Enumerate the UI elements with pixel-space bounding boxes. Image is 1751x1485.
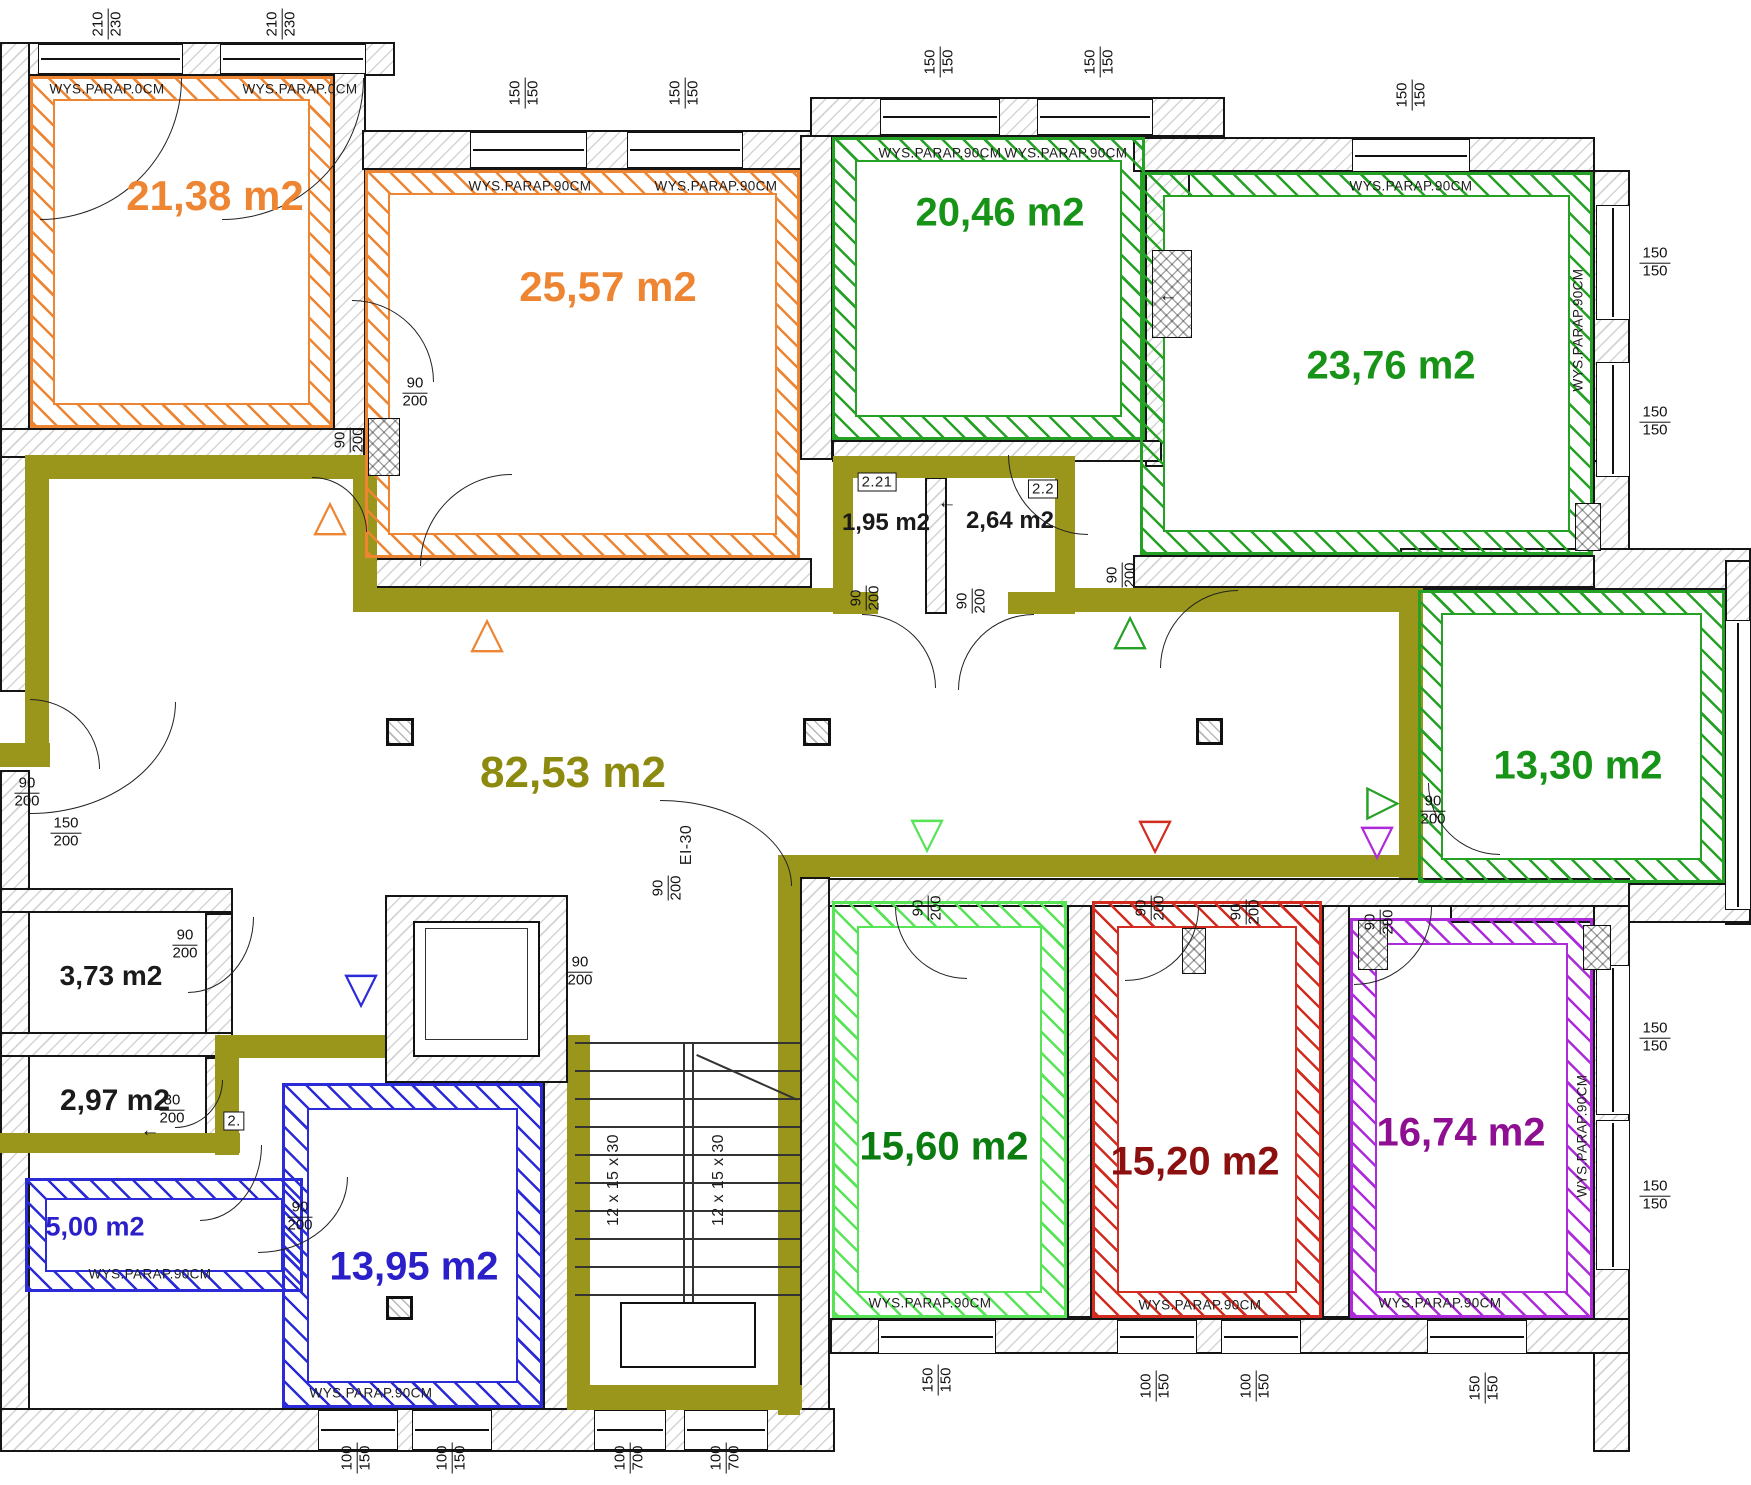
up-triangle-marker: △ bbox=[313, 494, 347, 538]
room-area-label: 82,53 m2 bbox=[480, 748, 666, 798]
window-symbol bbox=[1037, 99, 1153, 135]
dimension-bottom: 150 bbox=[939, 1364, 956, 1395]
room-area-label: 23,76 m2 bbox=[1306, 344, 1475, 389]
dimension-top: 90 bbox=[333, 427, 351, 452]
dimension-bottom: 150 bbox=[453, 1442, 470, 1473]
dimension-top: 150 bbox=[1395, 79, 1413, 110]
dimension-bottom: 200 bbox=[669, 875, 686, 900]
dimension-bottom: 200 bbox=[172, 946, 197, 963]
dimension-bottom: 200 bbox=[1123, 562, 1140, 587]
corridor-boundary bbox=[353, 588, 835, 612]
dimension-bottom: 700 bbox=[631, 1442, 648, 1473]
dimension-top: 100 bbox=[613, 1442, 631, 1473]
dimension-label: 150150 bbox=[1639, 1021, 1670, 1056]
dimension-label: 150150 bbox=[668, 77, 703, 108]
dimension-label: 90200 bbox=[849, 585, 884, 610]
dimension-label: 90200 bbox=[911, 895, 946, 920]
dimension-label: 100700 bbox=[613, 1442, 648, 1473]
dimension-label: 90200 bbox=[172, 928, 197, 963]
vent-shaft bbox=[1583, 925, 1611, 970]
corridor-boundary bbox=[778, 855, 800, 1415]
dimension-top: 150 bbox=[1083, 46, 1101, 77]
dimension-label: 90200 bbox=[1105, 562, 1140, 587]
stair-tread bbox=[575, 1098, 800, 1100]
dimension-label: 100150 bbox=[340, 1442, 375, 1473]
wall-segment bbox=[800, 877, 830, 1410]
wall-annotation: WYS.PARAP.90CM bbox=[1005, 146, 1128, 161]
wall-segment bbox=[1133, 555, 1595, 588]
dimension-label: 90200 bbox=[955, 588, 990, 613]
dimension-label: 90200 bbox=[14, 776, 39, 811]
dimension-bottom: 150 bbox=[1413, 79, 1430, 110]
wall-segment bbox=[800, 135, 833, 460]
wall-annotation: WYS.PARAP.90CM bbox=[1139, 1298, 1262, 1313]
room-15-60-interior bbox=[857, 926, 1042, 1293]
stair-tread bbox=[575, 1126, 800, 1128]
window-symbol bbox=[470, 132, 587, 168]
dimension-top: 210 bbox=[265, 8, 283, 39]
dimension-top: 90 bbox=[1420, 794, 1445, 812]
dimension-top: 100 bbox=[1139, 1370, 1157, 1401]
dimension-top: 90 bbox=[911, 895, 929, 920]
stair-tread bbox=[575, 1042, 800, 1044]
wall-annotation: WYS.PARAP.90CM bbox=[310, 1386, 433, 1401]
window-symbol bbox=[1117, 1320, 1197, 1354]
stair-tread bbox=[575, 1294, 800, 1296]
dimension-top: 100 bbox=[709, 1442, 727, 1473]
dimension-label: 90200 bbox=[1229, 899, 1264, 924]
dimension-label: 90200 bbox=[1420, 794, 1445, 829]
dimension-top: 150 bbox=[50, 816, 81, 834]
column bbox=[386, 718, 414, 746]
direction-arrow: ← bbox=[1159, 285, 1178, 307]
wall-annotation: 12 x 15 x 30 bbox=[605, 1134, 623, 1226]
dimension-label: 90200 bbox=[333, 427, 368, 452]
dimension-top: 150 bbox=[1639, 405, 1670, 423]
wall-segment bbox=[0, 1032, 233, 1057]
vent-shaft bbox=[368, 418, 400, 476]
dimension-bottom: 200 bbox=[929, 895, 946, 920]
dimension-label: 90200 bbox=[287, 1200, 312, 1235]
dimension-label: 100150 bbox=[1139, 1370, 1174, 1401]
dimension-bottom: 150 bbox=[1639, 1039, 1670, 1056]
dimension-bottom: 200 bbox=[1152, 895, 1169, 920]
room-20-46 bbox=[832, 137, 1145, 440]
room-area-label: 21,38 m2 bbox=[126, 172, 303, 220]
room-area-label: 20,46 m2 bbox=[915, 191, 1084, 236]
dimension-top: 150 bbox=[921, 1364, 939, 1395]
dimension-label: 90200 bbox=[1363, 909, 1398, 934]
window-symbol bbox=[1352, 139, 1470, 172]
room-25-57-interior bbox=[388, 193, 777, 535]
dimension-label: 150150 bbox=[1639, 405, 1670, 440]
dimension-label: 150200 bbox=[50, 816, 81, 851]
dimension-top: 90 bbox=[651, 875, 669, 900]
direction-arrow: ← bbox=[141, 1120, 160, 1142]
dimension-top: 100 bbox=[435, 1442, 453, 1473]
stair-landing bbox=[620, 1302, 756, 1368]
window-symbol bbox=[1596, 205, 1630, 320]
room-area-label: 15,60 m2 bbox=[859, 1125, 1028, 1170]
dimension-top: 90 bbox=[14, 776, 39, 794]
dimension-top: 90 bbox=[955, 588, 973, 613]
room-area-label: 1,95 m2 bbox=[842, 509, 930, 537]
dimension-top: 100 bbox=[340, 1442, 358, 1473]
stair-divider bbox=[683, 1042, 685, 1302]
dimension-top: 150 bbox=[508, 77, 526, 108]
dimension-bottom: 200 bbox=[50, 834, 81, 851]
room-number-tag: 2.21 bbox=[858, 473, 897, 492]
room-area-label: 15,20 m2 bbox=[1110, 1140, 1279, 1185]
window-symbol bbox=[1596, 1120, 1630, 1270]
dimension-bottom: 200 bbox=[973, 588, 990, 613]
corridor-boundary bbox=[1008, 592, 1075, 614]
door-swing-arc bbox=[30, 702, 176, 814]
dimension-label: 150150 bbox=[1639, 1179, 1670, 1214]
dimension-top: 150 bbox=[1468, 1372, 1486, 1403]
dimension-label: 100700 bbox=[709, 1442, 744, 1473]
corridor-boundary bbox=[25, 455, 377, 479]
dimension-label: 210230 bbox=[265, 8, 300, 39]
room-area-label: 2,64 m2 bbox=[966, 507, 1054, 535]
dimension-bottom: 200 bbox=[402, 394, 427, 411]
up-triangle-marker: △ bbox=[470, 611, 504, 655]
dimension-label: 100150 bbox=[1239, 1370, 1274, 1401]
dimension-bottom: 150 bbox=[1639, 1197, 1670, 1214]
dimension-top: 150 bbox=[1639, 1179, 1670, 1197]
dimension-label: 150150 bbox=[1395, 79, 1430, 110]
room-area-label: 16,74 m2 bbox=[1376, 1111, 1545, 1156]
up-triangle-marker: △ bbox=[1113, 608, 1147, 652]
wall-segment bbox=[1322, 905, 1350, 1318]
direction-arrow: ← bbox=[938, 492, 957, 514]
wall-annotation: WYS.PARAP.0CM bbox=[50, 82, 165, 97]
dimension-top: 90 bbox=[402, 376, 427, 394]
room-15-20-interior bbox=[1117, 926, 1297, 1293]
wall-annotation: 12 x 15 x 30 bbox=[710, 1134, 728, 1226]
door-swing-arc bbox=[188, 917, 254, 993]
dimension-bottom: 200 bbox=[1420, 812, 1445, 829]
dimension-bottom: 150 bbox=[1101, 46, 1118, 77]
window-symbol bbox=[880, 99, 1000, 135]
corridor-boundary bbox=[567, 1035, 590, 1407]
dimension-top: 210 bbox=[91, 8, 109, 39]
dimension-bottom: 150 bbox=[526, 77, 543, 108]
wall-annotation: WYS.PARAP.90CM bbox=[1350, 179, 1473, 194]
wall-segment bbox=[810, 97, 1225, 137]
dimension-top: 150 bbox=[668, 77, 686, 108]
column bbox=[386, 1296, 413, 1320]
room-area-label: 25,57 m2 bbox=[519, 263, 696, 311]
door-swing-arc bbox=[862, 614, 936, 688]
floor-plan: 2102302102301501501501501501501501501501… bbox=[0, 0, 1751, 1485]
room-number-tag: 2.2 bbox=[1028, 480, 1058, 499]
dimension-top: 90 bbox=[567, 955, 592, 973]
room-area-label: 3,73 m2 bbox=[60, 960, 163, 992]
column bbox=[803, 718, 831, 746]
dimension-bottom: 150 bbox=[686, 77, 703, 108]
dimension-bottom: 700 bbox=[727, 1442, 744, 1473]
dimension-label: 90200 bbox=[567, 955, 592, 990]
dimension-top: 150 bbox=[923, 46, 941, 77]
room-area-label: 13,30 m2 bbox=[1493, 744, 1662, 789]
dimension-bottom: 150 bbox=[1486, 1372, 1503, 1403]
wall-annotation: WYS.PARAP.90CM bbox=[655, 179, 778, 194]
dimension-bottom: 150 bbox=[941, 46, 958, 77]
dimension-top: 90 bbox=[1363, 909, 1381, 934]
dimension-top: 90 bbox=[172, 928, 197, 946]
door-swing-arc bbox=[958, 614, 1034, 690]
dimension-label: 150150 bbox=[1468, 1372, 1503, 1403]
window-symbol bbox=[220, 44, 366, 74]
right-triangle-marker: ▷ bbox=[1366, 779, 1400, 823]
dimension-top: 90 bbox=[1229, 899, 1247, 924]
wall-annotation: WYS.PARAP.90CM bbox=[1379, 1296, 1502, 1311]
dimension-label: 100150 bbox=[435, 1442, 470, 1473]
wall-segment bbox=[1067, 905, 1092, 1318]
dimension-bottom: 200 bbox=[567, 973, 592, 990]
down-triangle-marker: ▽ bbox=[344, 967, 378, 1011]
dimension-top: 150 bbox=[1639, 1021, 1670, 1039]
dimension-label: 150150 bbox=[921, 1364, 956, 1395]
wall-annotation: WYS.PARAP.90CM bbox=[869, 1296, 992, 1311]
dimension-label: 210230 bbox=[91, 8, 126, 39]
room-area-label: 2,97 m2 bbox=[60, 1084, 170, 1118]
dimension-bottom: 150 bbox=[1639, 264, 1670, 281]
stair-tread bbox=[575, 1266, 800, 1268]
window-symbol bbox=[1596, 362, 1630, 477]
stair-tread bbox=[575, 1238, 800, 1240]
dimension-bottom: 150 bbox=[1257, 1370, 1274, 1401]
wall-annotation: WYS.PARAP.90CM bbox=[89, 1267, 212, 1282]
stair-divider bbox=[692, 1042, 694, 1302]
dimension-bottom: 150 bbox=[1157, 1370, 1174, 1401]
dimension-bottom: 200 bbox=[867, 585, 884, 610]
room-area-label: 5,00 m2 bbox=[45, 1212, 144, 1243]
dimension-top: 90 bbox=[849, 585, 867, 610]
window-symbol bbox=[1596, 965, 1630, 1115]
down-triangle-marker: ▽ bbox=[1138, 813, 1172, 857]
dimension-top: 90 bbox=[1134, 895, 1152, 920]
dimension-top: 150 bbox=[1639, 246, 1670, 264]
wall-annotation: WYS.PARAP.90CM bbox=[879, 146, 1002, 161]
wall-segment bbox=[0, 770, 30, 1452]
window-symbol bbox=[38, 44, 183, 74]
window-symbol bbox=[1427, 1320, 1527, 1354]
corridor-boundary bbox=[567, 1385, 802, 1410]
wall-annotation: WYS.PARAP.90CM bbox=[1575, 1075, 1590, 1198]
dimension-bottom: 200 bbox=[14, 794, 39, 811]
window-symbol bbox=[1221, 1320, 1301, 1354]
dimension-label: 90200 bbox=[651, 875, 686, 900]
down-triangle-marker: ▽ bbox=[910, 812, 944, 856]
dimension-bottom: 230 bbox=[109, 8, 126, 39]
dimension-label: 150150 bbox=[508, 77, 543, 108]
dimension-bottom: 150 bbox=[1639, 423, 1670, 440]
dimension-label: 150150 bbox=[923, 46, 958, 77]
dimension-label: 150150 bbox=[1639, 246, 1670, 281]
dimension-bottom: 150 bbox=[358, 1442, 375, 1473]
room-area-label: 13,95 m2 bbox=[329, 1245, 498, 1290]
dimension-label: 90200 bbox=[402, 376, 427, 411]
dimension-bottom: 230 bbox=[283, 8, 300, 39]
wall-annotation: WYS.PARAP.90CM bbox=[469, 179, 592, 194]
dimension-top: 100 bbox=[1239, 1370, 1257, 1401]
column bbox=[1196, 718, 1223, 745]
wall-annotation: EI-30 bbox=[678, 825, 696, 865]
vent-shaft bbox=[1575, 503, 1601, 551]
dimension-label: 150150 bbox=[1083, 46, 1118, 77]
wall-segment bbox=[0, 888, 233, 913]
wall-segment bbox=[0, 428, 365, 458]
dimension-bottom: 200 bbox=[287, 1218, 312, 1235]
stair-tread bbox=[575, 1070, 800, 1072]
window-symbol bbox=[627, 132, 743, 168]
dimension-bottom: 200 bbox=[1247, 899, 1264, 924]
window-symbol bbox=[1725, 620, 1751, 910]
window-symbol bbox=[878, 1320, 996, 1354]
dimension-top: 90 bbox=[1105, 562, 1123, 587]
dimension-bottom: 200 bbox=[351, 427, 368, 452]
wall-annotation: WYS.PARAP.90CM bbox=[1571, 269, 1586, 392]
dimension-bottom: 200 bbox=[1381, 909, 1398, 934]
corridor-boundary bbox=[800, 855, 1423, 877]
room-number-tag: 2. bbox=[223, 1112, 244, 1131]
wall-segment bbox=[362, 130, 812, 170]
elevator-cab-inner bbox=[425, 928, 528, 1040]
dimension-top: 90 bbox=[287, 1200, 312, 1218]
dimension-label: 90200 bbox=[1134, 895, 1169, 920]
wall-annotation: WYS.PARAP.0CM bbox=[243, 82, 358, 97]
